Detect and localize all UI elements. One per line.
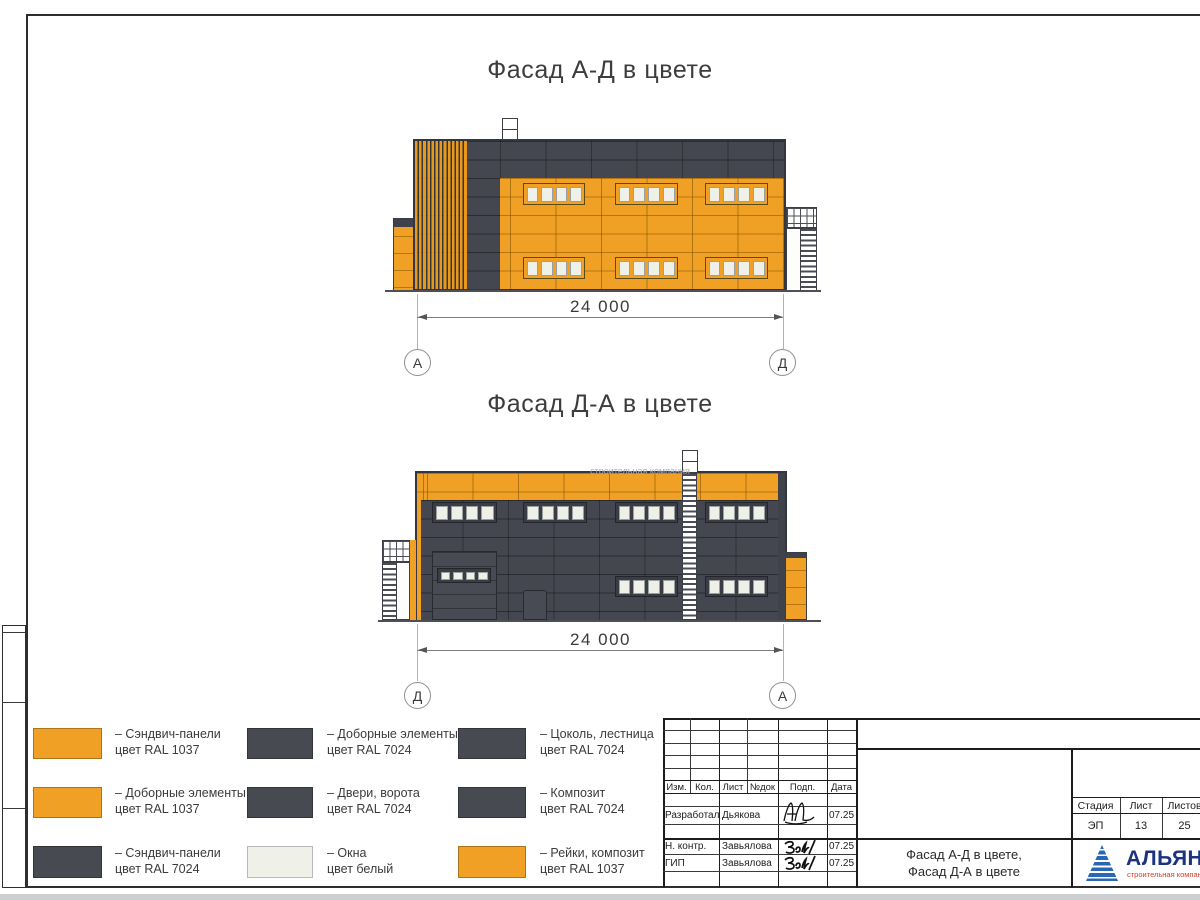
window-group <box>615 183 678 205</box>
facade2-door <box>523 590 547 620</box>
window-pane <box>648 580 660 594</box>
facade2-right-section <box>785 552 807 620</box>
window-pane <box>723 580 735 594</box>
window-pane <box>753 261 765 276</box>
window-pane <box>541 261 553 276</box>
window-pane <box>663 580 675 594</box>
window-pane <box>441 572 451 580</box>
window-group <box>615 576 678 597</box>
chimney-divider <box>683 461 697 462</box>
facade-ad-title: Фасад А-Д в цвете <box>300 56 900 85</box>
window-pane <box>556 187 568 202</box>
signer-name: Дьякова <box>722 806 777 824</box>
window-group <box>432 502 497 523</box>
window-pane <box>478 572 488 580</box>
legend-label-line2: цвет RAL 7024 <box>540 802 625 818</box>
window-pane <box>527 187 539 202</box>
facade1-dimension-label: 24 000 <box>468 297 733 317</box>
stamp-col-podp: Подп. <box>778 781 827 793</box>
stamp-col-data: Дата <box>827 781 856 793</box>
window-pane <box>527 261 539 276</box>
legend-label: – Композит цвет RAL 7024 <box>540 786 625 817</box>
window-pane <box>556 261 568 276</box>
legend-label-line1: – Доборные элементы <box>327 727 458 743</box>
facade1-annex-band <box>394 219 413 227</box>
dimension-arrow <box>418 314 427 320</box>
window-pane <box>723 187 735 202</box>
signer-name: Завьялова <box>722 855 777 871</box>
legend-label-line2: цвет RAL 1037 <box>115 743 221 759</box>
legend-label-line1: – Композит <box>540 786 625 802</box>
window-pane <box>570 187 582 202</box>
page-bottom-edge <box>0 894 1200 900</box>
signature <box>781 799 825 830</box>
legend-label-line1: – Окна <box>327 846 393 862</box>
stamp-col-izm: Изм. <box>663 781 690 793</box>
signer-date: 07.25 <box>827 838 856 854</box>
facade1-top-band <box>500 141 784 178</box>
legend-label: – Цоколь, лестница цвет RAL 7024 <box>540 727 654 758</box>
legend-label-line1: – Рейки, композит <box>540 846 645 862</box>
facade2-stair-steps <box>382 562 397 620</box>
stamp-doc-title: Фасад А-Д в цвете, Фасад Д-А в цвете <box>857 839 1071 887</box>
legend-swatch <box>33 728 102 759</box>
facade-da-title: Фасад Д-А в цвете <box>300 390 900 419</box>
facade2-left-trim <box>417 500 421 620</box>
axis-marker-right: А <box>769 682 796 709</box>
margin-divider <box>3 632 25 633</box>
stamp-line <box>857 748 1200 750</box>
legend-label: – Сэндвич-панели цвет RAL 1037 <box>115 727 221 758</box>
window-pane <box>709 187 721 202</box>
window-pane <box>663 261 675 276</box>
stage-value: ЭП <box>1071 814 1120 837</box>
legend-swatch <box>33 846 102 878</box>
legend-label: – Сэндвич-панели цвет RAL 7024 <box>115 846 221 877</box>
window-pane <box>436 506 448 520</box>
chimney-divider <box>503 129 517 130</box>
stamp-line <box>663 743 856 744</box>
facade1-stair-steps <box>800 228 817 292</box>
axis-marker-left: А <box>404 349 431 376</box>
stamp-line <box>663 824 856 825</box>
facade1-annex <box>393 218 414 291</box>
window-group <box>523 502 587 523</box>
legend-label: – Доборные элементы цвет RAL 1037 <box>115 786 246 817</box>
left-margin-boxes <box>2 625 26 888</box>
signer-name: Завьялова <box>722 838 777 854</box>
window-group <box>705 502 768 523</box>
signer-date: 07.25 <box>827 855 856 871</box>
facade2-stair-column <box>396 562 410 620</box>
stamp-line <box>663 718 1200 720</box>
window-pane <box>557 506 569 520</box>
stamp-col-kol: Кол. <box>690 781 719 793</box>
stamp-doc-title-line1: Фасад А-Д в цвете, <box>906 846 1022 863</box>
legend-label: – Двери, ворота цвет RAL 7024 <box>327 786 420 817</box>
margin-divider <box>3 702 25 703</box>
dimension-arrow <box>774 647 783 653</box>
window-group <box>615 257 678 279</box>
window-pane <box>738 580 750 594</box>
window-pane <box>572 506 584 520</box>
window-pane <box>541 187 553 202</box>
facade2-orange-band <box>417 473 785 500</box>
legend-label: – Доборные элементы цвет RAL 7024 <box>327 727 458 758</box>
window-pane <box>648 187 660 202</box>
stamp-col-list: Лист <box>719 781 747 793</box>
facade1-slats <box>415 141 467 289</box>
legend-label-line2: цвет RAL 1037 <box>115 802 246 818</box>
stamp-col-ndok: №док <box>747 781 778 793</box>
stamp-line <box>663 793 856 794</box>
sheet-value: 13 <box>1120 814 1162 837</box>
legend-label-line1: – Двери, ворота <box>327 786 420 802</box>
window-pane <box>633 261 645 276</box>
signer-role: ГИП <box>665 855 719 871</box>
window-pane <box>753 580 765 594</box>
legend-label-line2: цвет белый <box>327 862 393 878</box>
facade2-right-trim <box>778 473 785 620</box>
facade1-chimney <box>502 118 518 140</box>
window-pane <box>633 187 645 202</box>
facade2-corner-trim <box>410 540 416 620</box>
legend-swatch <box>33 787 102 818</box>
legend-swatch <box>247 846 313 878</box>
window-group <box>523 257 585 279</box>
window-pane <box>619 261 631 276</box>
window-pane <box>663 506 675 520</box>
legend-label-line1: – Цоколь, лестница <box>540 727 654 743</box>
dimension-arrow <box>774 314 783 320</box>
legend-label-line2: цвет RAL 1037 <box>540 862 645 878</box>
facade2-right-section-band <box>786 553 806 558</box>
legend-label-line1: – Сэндвич-панели <box>115 727 221 743</box>
facade1-stair-railing <box>786 207 817 228</box>
facade2-dimension-label: 24 000 <box>468 630 733 650</box>
window-group <box>705 576 768 597</box>
legend-label-line2: цвет RAL 7024 <box>115 862 221 878</box>
extension-line <box>783 624 784 681</box>
window-group <box>705 257 768 279</box>
window-pane <box>633 506 645 520</box>
stamp-line <box>663 730 856 731</box>
signer-role: Н. контр. <box>665 838 719 854</box>
window-group <box>615 502 678 523</box>
company-logo-subtitle: строительная компания <box>1127 870 1200 879</box>
window-pane <box>753 506 765 520</box>
margin-divider <box>3 808 25 809</box>
window-pane <box>738 261 750 276</box>
stamp-line <box>663 755 856 756</box>
window-pane <box>570 261 582 276</box>
window-pane <box>709 506 721 520</box>
legend-swatch <box>458 846 526 878</box>
stamp-doc-title-line2: Фасад Д-А в цвете <box>908 863 1020 880</box>
dimension-arrow <box>418 647 427 653</box>
sheets-label: Листов <box>1162 798 1200 813</box>
window-pane <box>466 572 476 580</box>
facade2-gate <box>432 551 497 620</box>
signature <box>783 855 823 876</box>
legend-label: – Окна цвет белый <box>327 846 393 877</box>
window-pane <box>648 261 660 276</box>
legend-swatch <box>458 728 526 759</box>
company-logo-name: АЛЬЯНС <box>1126 847 1200 871</box>
facade1-ground-line <box>385 290 821 292</box>
window-pane <box>619 580 631 594</box>
window-pane <box>709 261 721 276</box>
legend-label-line1: – Сэндвич-панели <box>115 846 221 862</box>
window-pane <box>619 506 631 520</box>
window-pane <box>709 580 721 594</box>
signer-role: Разработал <box>665 806 719 824</box>
window-pane <box>723 506 735 520</box>
facade2-wall-ladder <box>682 473 697 620</box>
window-pane <box>619 187 631 202</box>
legend-label-line2: цвет RAL 7024 <box>327 802 420 818</box>
facade2-ground-line <box>378 620 821 622</box>
legend-swatch <box>247 787 313 818</box>
legend-label-line1: – Доборные элементы <box>115 786 246 802</box>
gate-window-strip <box>437 568 491 583</box>
window-pane <box>633 580 645 594</box>
sheets-value: 25 <box>1162 814 1200 837</box>
legend-label-line2: цвет RAL 7024 <box>540 743 654 759</box>
window-pane <box>527 506 539 520</box>
dimension-line <box>417 650 783 651</box>
window-pane <box>542 506 554 520</box>
legend-swatch <box>458 787 526 818</box>
sheet-label: Лист <box>1120 798 1162 813</box>
window-pane <box>753 187 765 202</box>
drawing-sheet: Фасад А-Д в цвете 24 000 А <box>0 0 1200 900</box>
window-group <box>523 183 585 205</box>
window-pane <box>453 572 463 580</box>
axis-marker-left: Д <box>404 682 431 709</box>
window-pane <box>451 506 463 520</box>
facade1-dark-strip <box>467 141 500 289</box>
legend-label: – Рейки, композит цвет RAL 1037 <box>540 846 645 877</box>
logo-watermark: строительная компания <box>565 466 715 476</box>
dimension-line <box>417 317 783 318</box>
signer-date: 07.25 <box>827 806 856 824</box>
extension-line <box>783 294 784 349</box>
window-pane <box>738 187 750 202</box>
window-pane <box>481 506 493 520</box>
stamp-line <box>663 871 856 872</box>
window-pane <box>466 506 478 520</box>
extension-line <box>417 294 418 349</box>
stamp-line <box>663 768 856 769</box>
window-pane <box>648 506 660 520</box>
legend-swatch <box>247 728 313 759</box>
window-group <box>705 183 768 205</box>
window-pane <box>738 506 750 520</box>
window-pane <box>663 187 675 202</box>
axis-marker-right: Д <box>769 349 796 376</box>
stage-label: Стадия <box>1071 798 1120 813</box>
window-pane <box>723 261 735 276</box>
legend-label-line2: цвет RAL 7024 <box>327 743 458 759</box>
